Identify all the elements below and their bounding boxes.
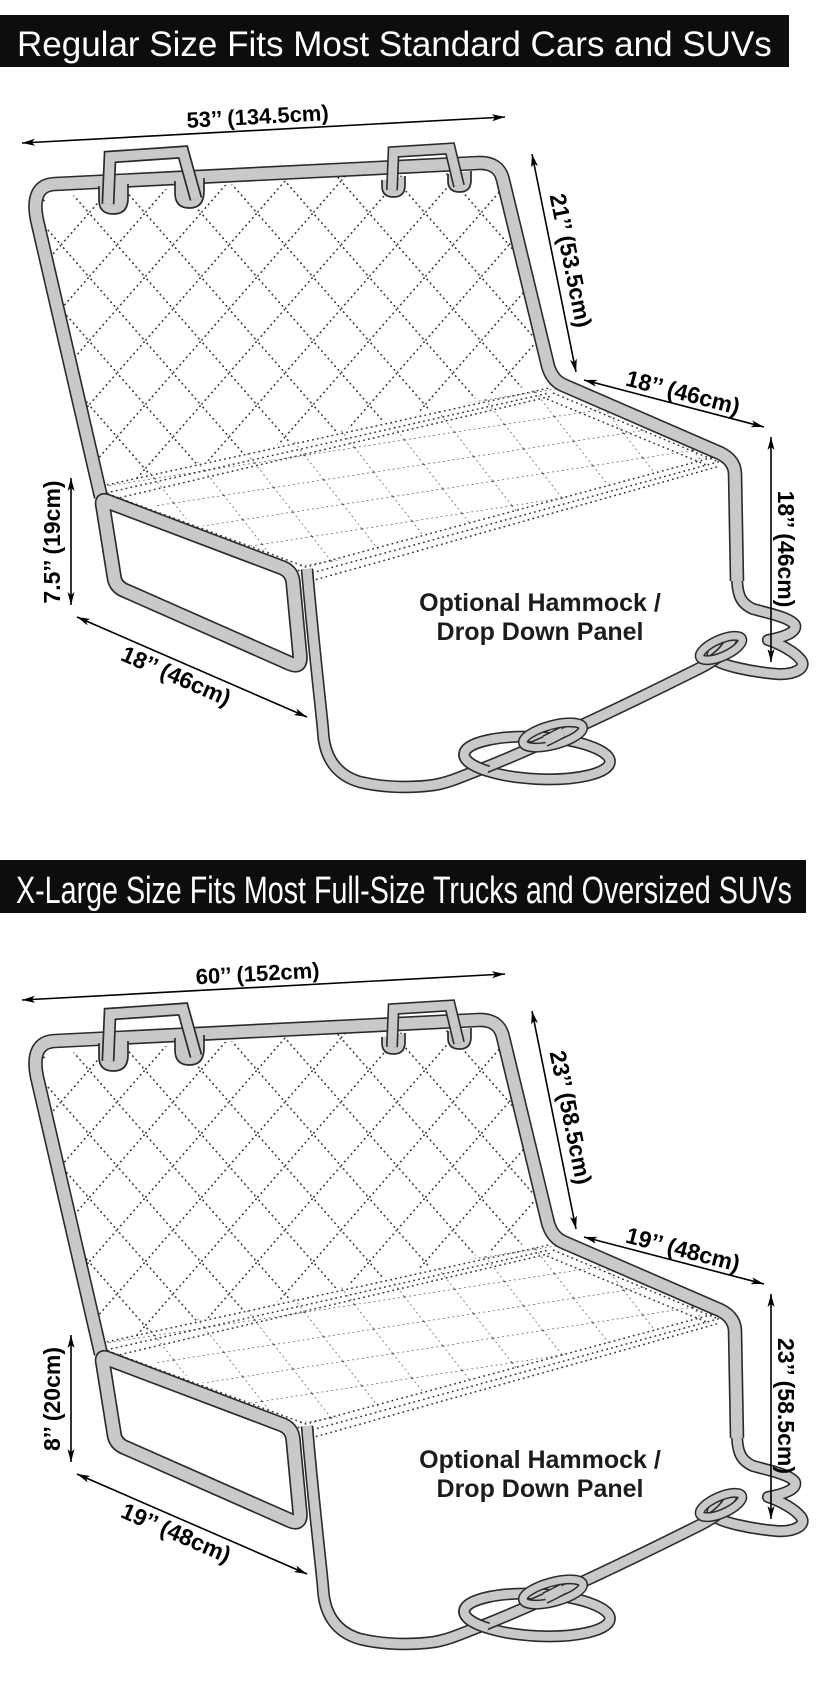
- svg-text:18’’ (46cm): 18’’ (46cm): [117, 640, 234, 710]
- svg-text:X-Large Size Fits Most Full-Si: X-Large Size Fits Most Full-Size Trucks …: [16, 870, 792, 912]
- svg-text:7.5’’ (19cm): 7.5’’ (19cm): [39, 480, 65, 603]
- svg-text:Drop Down Panel: Drop Down Panel: [437, 618, 644, 646]
- svg-text:21’’ (53.5cm): 21’’ (53.5cm): [545, 191, 597, 329]
- svg-text:Optional Hammock /: Optional Hammock /: [419, 589, 661, 617]
- svg-text:23’’ (58.5cm): 23’’ (58.5cm): [773, 1338, 799, 1474]
- svg-text:18’’ (46cm): 18’’ (46cm): [773, 491, 799, 608]
- svg-text:Optional Hammock /: Optional Hammock /: [419, 1446, 661, 1474]
- svg-text:Regular Size Fits Most Standar: Regular Size Fits Most Standard Cars and…: [17, 25, 772, 64]
- svg-text:23’’ (58.5cm): 23’’ (58.5cm): [545, 1048, 597, 1186]
- svg-text:19’’ (48cm): 19’’ (48cm): [117, 1497, 234, 1567]
- svg-text:8’’ (20cm): 8’’ (20cm): [39, 1347, 65, 1451]
- svg-text:Drop Down Panel: Drop Down Panel: [437, 1475, 644, 1503]
